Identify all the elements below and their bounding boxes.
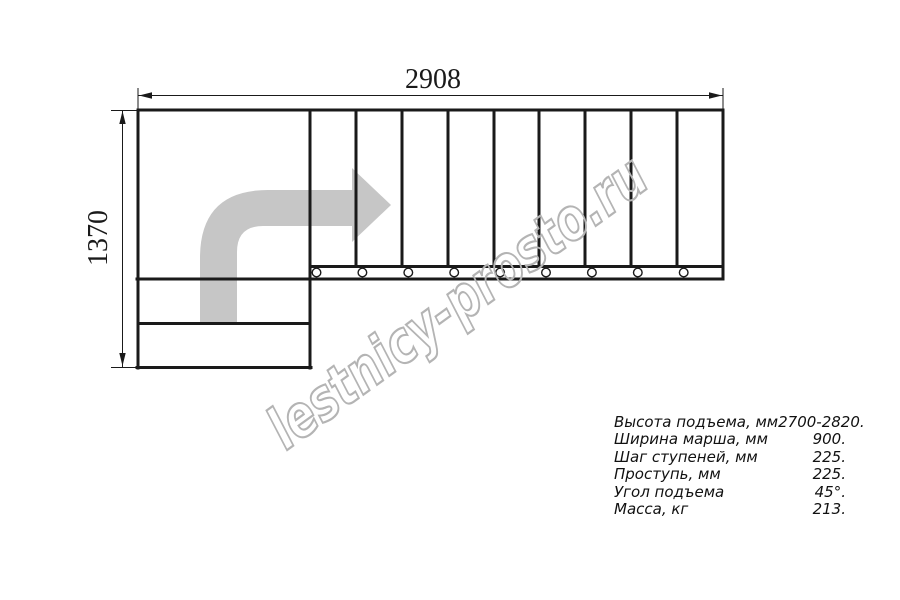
spec-row-height: Высота подъема, мм 2700-2820. [614,414,846,431]
spec-value: 225. [813,449,846,466]
spec-label: Угол подъема [614,484,724,501]
dim-arrow-down-icon [119,353,125,366]
spec-label: Проступь, мм [614,466,721,483]
dim-arrow-up-icon [119,111,125,124]
staircase-plan-page: 2908 1370 lestnicy-prosto.ru Высота подъ… [0,0,900,600]
watermark-text: lestnicy-prosto.ru [254,142,660,463]
spec-label: Шаг ступеней, мм [614,449,758,466]
baluster-circle [358,268,367,277]
dim-arrow-right-icon [709,92,722,98]
spec-row-flight-width: Ширина марша, мм 900. [614,431,846,448]
spec-label: Ширина марша, мм [614,431,768,448]
spec-value: 225. [813,466,846,483]
baluster-circle [679,268,688,277]
width-dimension-value: 2908 [405,64,461,95]
dim-arrow-left-icon [139,92,152,98]
spec-row-tread: Проступь, мм 225. [614,466,846,483]
spec-row-mass: Масса, кг 213. [614,501,846,518]
height-dimension-value: 1370 [83,210,114,266]
baluster-circle [404,268,413,277]
baluster-circle [634,268,643,277]
spec-value: 45°. [815,484,846,501]
spec-value: 213. [813,501,846,518]
spec-value: 900. [813,431,846,448]
spec-label: Высота подъема, мм [614,414,778,431]
spec-label: Масса, кг [614,501,688,518]
spec-value: 2700-2820. [778,414,865,431]
spec-table: Высота подъема, мм 2700-2820. Ширина мар… [614,414,846,518]
baluster-circle [312,268,321,277]
spec-row-step-rise: Шаг ступеней, мм 225. [614,449,846,466]
spec-row-angle: Угол подъема 45°. [614,484,846,501]
baluster-circle [588,268,597,277]
direction-arrow [200,168,391,323]
